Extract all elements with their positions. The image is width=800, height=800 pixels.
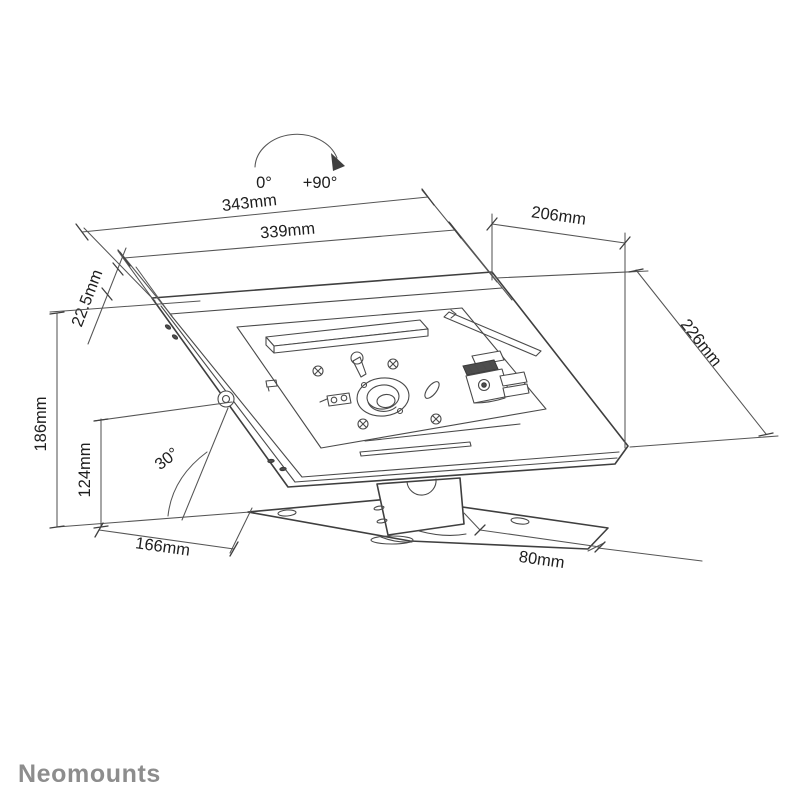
dim-thickness: 22.5mm [68,248,170,344]
rotation-indicator: 0° +90° [255,134,345,192]
dim-label-30: 30° [152,444,183,474]
rotation-arc [255,134,337,167]
dim-label-22-5: 22.5mm [68,267,106,329]
dim-label-166: 166mm [134,534,191,559]
dim-label-226: 226mm [677,316,725,370]
dim-label-343: 343mm [221,191,278,215]
rotation-end-label: +90° [303,174,338,192]
dim-label-124: 124mm [76,442,94,497]
dim-pivot-height: 124mm [76,402,232,528]
rotation-start-label: 0° [256,174,272,192]
dim-label-206: 206mm [530,203,587,228]
dim-label-80: 80mm [518,548,566,572]
brand-logo: Neomounts [18,760,161,788]
rotation-arrowhead [331,153,345,171]
dim-base-depth: 166mm [95,508,252,560]
technical-drawing-page: 343mm 339mm 206mm 226mm [0,0,800,800]
dim-label-339: 339mm [259,220,315,243]
drawing-canvas: 343mm 339mm 206mm 226mm [0,0,800,800]
dim-label-186: 186mm [32,396,50,451]
lock-cylinder [218,391,234,407]
dim-tilt-angle: 30° [152,408,228,520]
